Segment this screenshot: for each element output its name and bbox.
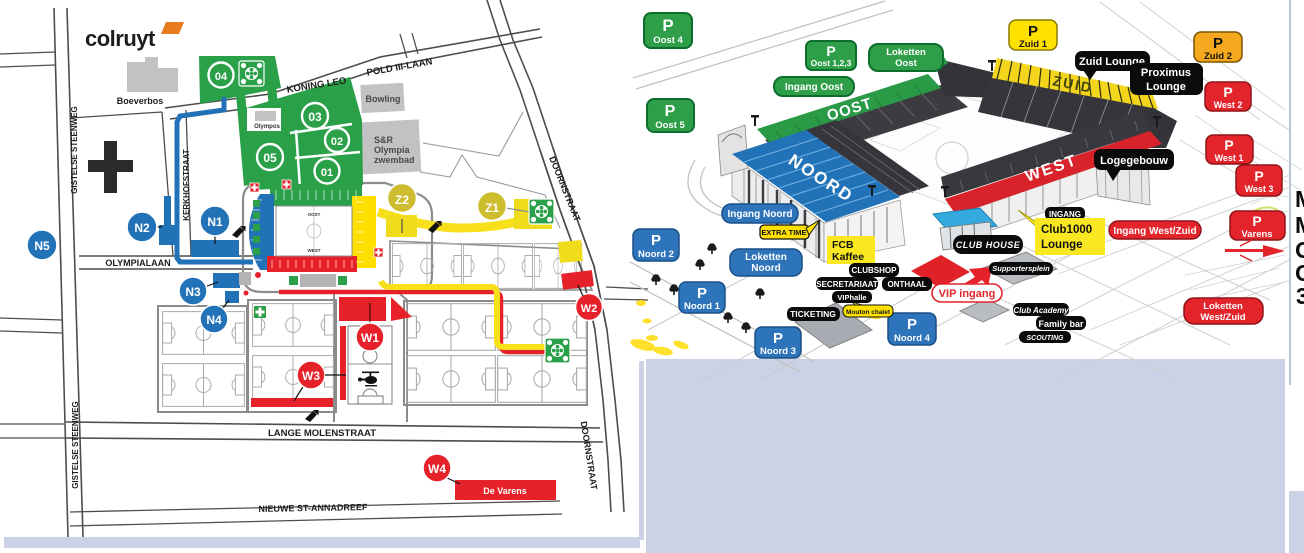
- svg-text:colruyt: colruyt: [85, 26, 156, 51]
- svg-text:Noord 4: Noord 4: [894, 333, 931, 344]
- svg-text:FCB: FCB: [832, 239, 854, 251]
- svg-text:W3: W3: [302, 369, 320, 383]
- svg-text:Z1: Z1: [485, 201, 499, 215]
- svg-text:01: 01: [321, 167, 333, 179]
- svg-text:Supportersplein: Supportersplein: [992, 264, 1050, 273]
- svg-text:NIEUWE ST-ANNADREEF: NIEUWE ST-ANNADREEF: [258, 502, 368, 514]
- svg-text:P: P: [773, 330, 783, 347]
- svg-text:CLUB HOUSE: CLUB HOUSE: [956, 240, 1021, 250]
- svg-text:WEST: WEST: [308, 248, 321, 253]
- svg-text:P: P: [1224, 137, 1233, 153]
- svg-text:P: P: [1028, 23, 1038, 40]
- svg-text:De Varens: De Varens: [483, 486, 527, 496]
- svg-text:KERKHOFSTRAAT: KERKHOFSTRAAT: [182, 149, 191, 221]
- svg-text:INGANG: INGANG: [1049, 210, 1081, 219]
- svg-text:Noord 3: Noord 3: [760, 346, 796, 357]
- svg-text:TICKETING: TICKETING: [790, 309, 836, 319]
- svg-text:Family bar: Family bar: [1038, 319, 1084, 329]
- svg-text:W1: W1: [361, 331, 379, 345]
- svg-text:Ingang West/Zuid: Ingang West/Zuid: [1113, 226, 1196, 237]
- svg-text:VIP ingang: VIP ingang: [939, 288, 996, 300]
- svg-text:P: P: [1223, 84, 1232, 100]
- svg-text:GISTELSE STEENWEG: GISTELSE STEENWEG: [70, 106, 79, 194]
- svg-text:P: P: [907, 316, 917, 333]
- svg-text:M: M: [1295, 186, 1304, 212]
- svg-text:3: 3: [1296, 283, 1304, 309]
- svg-text:Zuid 2: Zuid 2: [1204, 51, 1232, 62]
- svg-text:P: P: [662, 16, 673, 35]
- svg-text:Ingang Oost: Ingang Oost: [785, 82, 844, 93]
- svg-text:OOST: OOST: [308, 212, 321, 217]
- svg-text:W2: W2: [581, 303, 598, 315]
- svg-text:Bowling: Bowling: [366, 94, 401, 104]
- svg-text:Proximus: Proximus: [1141, 67, 1191, 79]
- svg-text:P: P: [826, 43, 835, 59]
- svg-text:P: P: [665, 103, 676, 120]
- svg-text:04: 04: [215, 71, 228, 83]
- svg-text:Loketten: Loketten: [1203, 301, 1243, 312]
- svg-text:P: P: [1213, 35, 1223, 52]
- svg-text:CLUBSHOP: CLUBSHOP: [852, 266, 898, 275]
- svg-text:Noord: Noord: [751, 263, 780, 274]
- svg-text:Mouton chalet: Mouton chalet: [846, 309, 891, 316]
- svg-text:Logegebouw: Logegebouw: [1100, 155, 1168, 167]
- svg-text:Zuid 1: Zuid 1: [1019, 39, 1048, 50]
- svg-text:S&R: S&R: [374, 135, 394, 145]
- svg-text:N2: N2: [134, 221, 150, 235]
- svg-text:Z2: Z2: [395, 193, 409, 207]
- svg-text:M: M: [1295, 212, 1304, 238]
- svg-text:Boeverbos: Boeverbos: [117, 96, 164, 106]
- svg-text:P: P: [1252, 213, 1261, 229]
- svg-text:N5: N5: [34, 239, 50, 253]
- svg-text:05: 05: [263, 151, 277, 165]
- svg-text:03: 03: [308, 110, 322, 124]
- svg-text:SCOUTING: SCOUTING: [1027, 335, 1065, 342]
- svg-text:P: P: [697, 285, 707, 302]
- svg-text:ONTHAAL: ONTHAAL: [887, 280, 926, 289]
- svg-text:Oost: Oost: [895, 58, 917, 69]
- svg-text:02: 02: [331, 136, 343, 148]
- svg-text:P: P: [1254, 168, 1263, 184]
- svg-text:N4: N4: [206, 313, 222, 327]
- svg-text:OLYMPIALAAN: OLYMPIALAAN: [105, 258, 170, 268]
- svg-text:VIPhalle: VIPhalle: [837, 293, 866, 302]
- svg-text:West 1: West 1: [1215, 153, 1244, 163]
- svg-text:Club1000: Club1000: [1041, 224, 1092, 236]
- svg-text:Kaffee: Kaffee: [832, 251, 864, 263]
- svg-text:West 3: West 3: [1245, 184, 1274, 194]
- svg-text:Olympia: Olympia: [374, 145, 411, 155]
- svg-text:Oost 4: Oost 4: [653, 35, 683, 46]
- svg-text:N3: N3: [185, 285, 201, 299]
- svg-text:Olympos: Olympos: [254, 124, 280, 130]
- svg-text:P: P: [651, 232, 661, 249]
- svg-text:Oost 5: Oost 5: [655, 120, 685, 131]
- svg-text:N1: N1: [207, 215, 223, 229]
- svg-text:GISTELSE STEENWEG: GISTELSE STEENWEG: [71, 401, 80, 489]
- svg-text:Loketten: Loketten: [745, 252, 787, 263]
- svg-text:EXTRA TIME: EXTRA TIME: [761, 228, 806, 237]
- svg-text:Varens: Varens: [1241, 229, 1272, 240]
- svg-text:W4: W4: [428, 462, 446, 476]
- svg-text:West 2: West 2: [1214, 100, 1243, 110]
- svg-text:Lounge: Lounge: [1041, 239, 1083, 251]
- svg-text:Oost 1,2,3: Oost 1,2,3: [811, 58, 852, 68]
- svg-text:SECRETARIAAT: SECRETARIAAT: [816, 280, 878, 289]
- svg-text:Club Academy: Club Academy: [1013, 306, 1069, 315]
- svg-text:Noord 1: Noord 1: [684, 301, 721, 312]
- svg-text:Lounge: Lounge: [1146, 81, 1186, 93]
- svg-text:Ingang Noord: Ingang Noord: [728, 209, 793, 220]
- svg-text:Noord 2: Noord 2: [638, 249, 674, 260]
- svg-text:zwembad: zwembad: [374, 155, 415, 165]
- svg-text:LANGE MOLENSTRAAT: LANGE MOLENSTRAAT: [268, 428, 376, 439]
- svg-text:Loketten: Loketten: [886, 47, 926, 58]
- svg-text:West/Zuid: West/Zuid: [1200, 312, 1245, 323]
